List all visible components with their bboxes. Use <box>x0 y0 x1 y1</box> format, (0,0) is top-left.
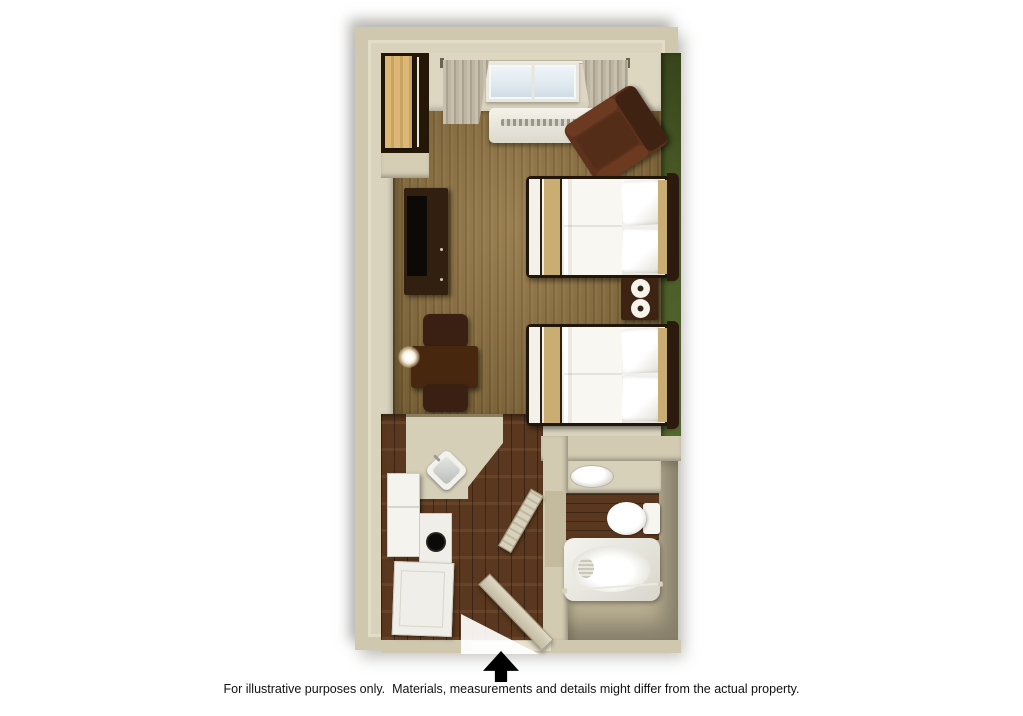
tv <box>407 196 427 276</box>
bed-2 <box>526 324 674 426</box>
shower-rod-bracket <box>562 588 567 593</box>
refrigerator-door-split <box>388 506 419 508</box>
cooktop <box>419 513 452 569</box>
dresser-knob <box>440 278 443 281</box>
nightstand-lamp <box>631 299 650 318</box>
nightstand <box>621 278 658 320</box>
shower-rod-bracket <box>658 581 663 586</box>
bed-headboard <box>667 173 679 281</box>
closet-sliding-door <box>385 56 412 148</box>
bathroom-sink <box>570 465 614 488</box>
bed-runner <box>544 327 562 423</box>
dining-chair <box>423 314 468 348</box>
bed-blanket <box>564 327 622 423</box>
bed-headboard <box>667 321 679 429</box>
bathroom-vanity <box>568 461 661 493</box>
room-interior <box>368 40 665 637</box>
sink-faucet <box>433 454 441 462</box>
entrance-arrow-icon <box>483 651 519 682</box>
bed-1 <box>526 176 674 278</box>
bed-bolster <box>658 328 667 422</box>
tv-dresser <box>404 188 448 295</box>
bed-blanket <box>564 179 622 275</box>
studio-floor-plan <box>355 27 678 650</box>
bathtub <box>564 538 660 601</box>
cabinet-door-panel <box>399 570 445 628</box>
refrigerator <box>387 473 420 557</box>
closet-wall-stub <box>381 153 429 178</box>
bed-bolster <box>658 180 667 274</box>
bathtub-drain-mat <box>578 558 594 578</box>
closet-rod <box>417 57 419 147</box>
table-lamp <box>398 346 420 368</box>
kitchen-cabinet <box>392 561 455 637</box>
dining-table <box>411 346 478 388</box>
nightstand-lamp <box>631 279 650 298</box>
cooktop-burner <box>426 532 446 552</box>
closet <box>381 53 429 153</box>
window-mullion <box>531 65 534 99</box>
toilet-bowl <box>607 502 646 535</box>
bathroom-doorway <box>545 491 566 567</box>
dining-chair <box>423 384 468 412</box>
bed-foot-linen <box>529 179 542 275</box>
disclaimer-caption: For illustrative purposes only. Material… <box>0 682 1023 696</box>
dresser-knob <box>440 248 443 251</box>
window <box>486 62 579 102</box>
floor-plan-page: For illustrative purposes only. Material… <box>0 0 1023 716</box>
bed-foot-linen <box>529 327 542 423</box>
bed-runner <box>544 179 562 275</box>
